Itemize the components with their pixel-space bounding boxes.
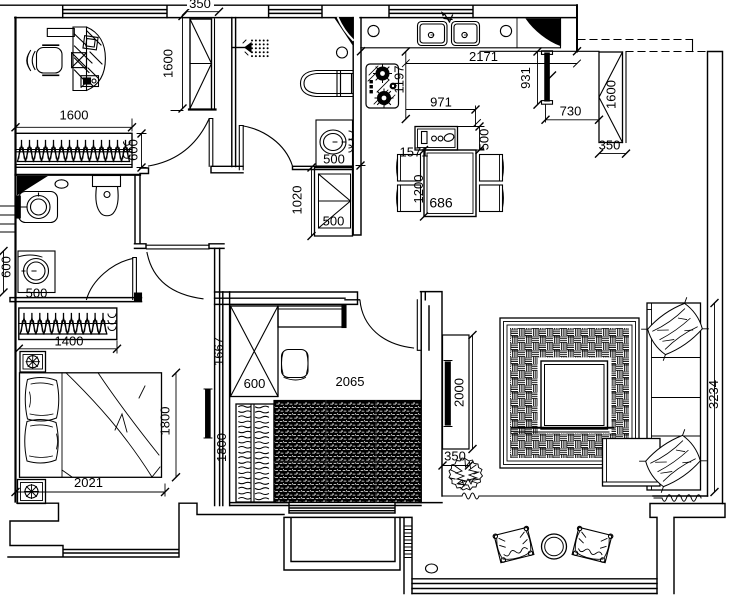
- svg-text:350: 350: [599, 138, 621, 153]
- svg-text:350: 350: [189, 0, 211, 11]
- svg-text:1200: 1200: [411, 175, 426, 204]
- svg-text:500: 500: [477, 129, 492, 151]
- svg-text:1600: 1600: [60, 108, 89, 123]
- svg-text:1571: 1571: [400, 145, 429, 160]
- svg-text:1600: 1600: [604, 80, 619, 109]
- svg-text:600: 600: [0, 256, 14, 278]
- svg-text:931: 931: [518, 67, 533, 89]
- svg-text:3234: 3234: [706, 380, 721, 409]
- svg-text:500: 500: [323, 214, 345, 229]
- svg-text:600: 600: [126, 139, 141, 161]
- svg-text:1800: 1800: [214, 433, 229, 462]
- svg-text:2000: 2000: [452, 378, 467, 407]
- svg-text:971: 971: [430, 95, 452, 110]
- svg-text:2065: 2065: [336, 374, 365, 389]
- svg-text:600: 600: [244, 376, 266, 391]
- svg-text:686: 686: [429, 195, 453, 211]
- svg-text:1667: 1667: [211, 337, 226, 366]
- svg-text:2171: 2171: [469, 49, 498, 64]
- svg-text:350: 350: [444, 449, 466, 464]
- svg-text:1020: 1020: [290, 186, 305, 215]
- svg-text:1800: 1800: [158, 407, 173, 436]
- svg-text:2021: 2021: [74, 475, 103, 490]
- svg-text:1197: 1197: [392, 66, 407, 94]
- svg-text:500: 500: [26, 286, 48, 301]
- svg-text:1600: 1600: [161, 49, 176, 78]
- svg-text:500: 500: [323, 152, 345, 167]
- svg-text:1400: 1400: [55, 334, 84, 349]
- svg-text:730: 730: [560, 104, 582, 119]
